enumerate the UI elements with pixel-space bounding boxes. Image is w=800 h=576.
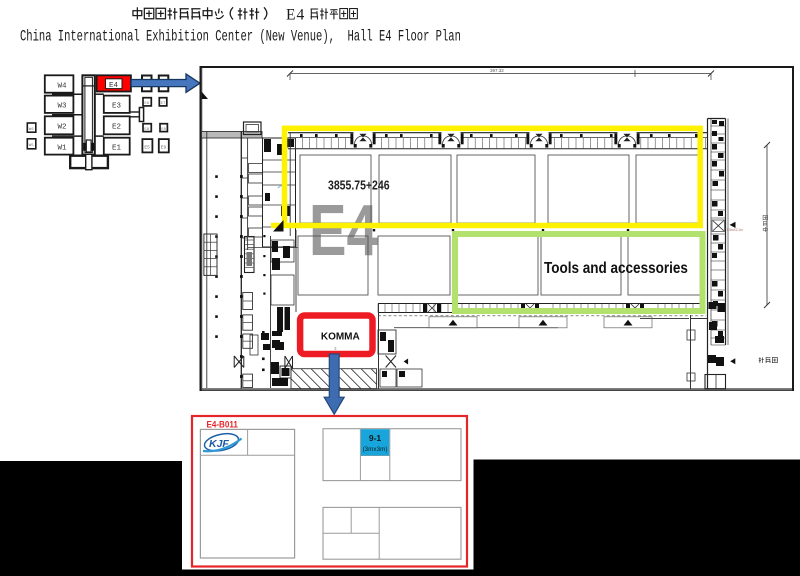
- svg-text:E1: E1: [112, 145, 122, 153]
- svg-text:Tools and accessories: Tools and accessories: [544, 260, 688, 277]
- svg-text:E4: E4: [286, 7, 305, 24]
- svg-text:KJF: KJF: [209, 438, 229, 450]
- svg-text:397.32: 397.32: [490, 68, 504, 73]
- svg-text:China International Exhibition: China International Exhibition Center (N…: [20, 29, 461, 47]
- svg-text:9-1: 9-1: [369, 433, 382, 443]
- svg-text:E9: E9: [161, 145, 167, 151]
- svg-text:E5: E5: [144, 145, 150, 151]
- svg-text:E4-B011: E4-B011: [207, 419, 238, 430]
- svg-text:3855.75+246: 3855.75+246: [328, 180, 390, 193]
- svg-text:W4: W4: [58, 83, 68, 91]
- svg-text:E2: E2: [112, 124, 121, 132]
- svg-text:E6: E6: [144, 102, 149, 106]
- svg-text:W3: W3: [58, 103, 68, 111]
- svg-text:W5: W5: [29, 144, 34, 148]
- svg-text:KOMMA: KOMMA: [321, 332, 360, 343]
- svg-text:(3mx3m): (3mx3m): [363, 446, 388, 453]
- svg-text:E3: E3: [112, 103, 122, 111]
- svg-text:E4: E4: [109, 82, 119, 90]
- svg-text:1.5mX2.1m: 1.5mX2.1m: [727, 228, 744, 232]
- svg-text:E7: E7: [161, 102, 166, 106]
- svg-text:W2: W2: [58, 124, 67, 132]
- svg-text:W6: W6: [29, 128, 34, 132]
- svg-text:W1: W1: [58, 145, 68, 153]
- svg-text:E4: E4: [309, 190, 378, 270]
- svg-text:E0: E0: [161, 128, 166, 132]
- svg-text:E8: E8: [144, 128, 149, 132]
